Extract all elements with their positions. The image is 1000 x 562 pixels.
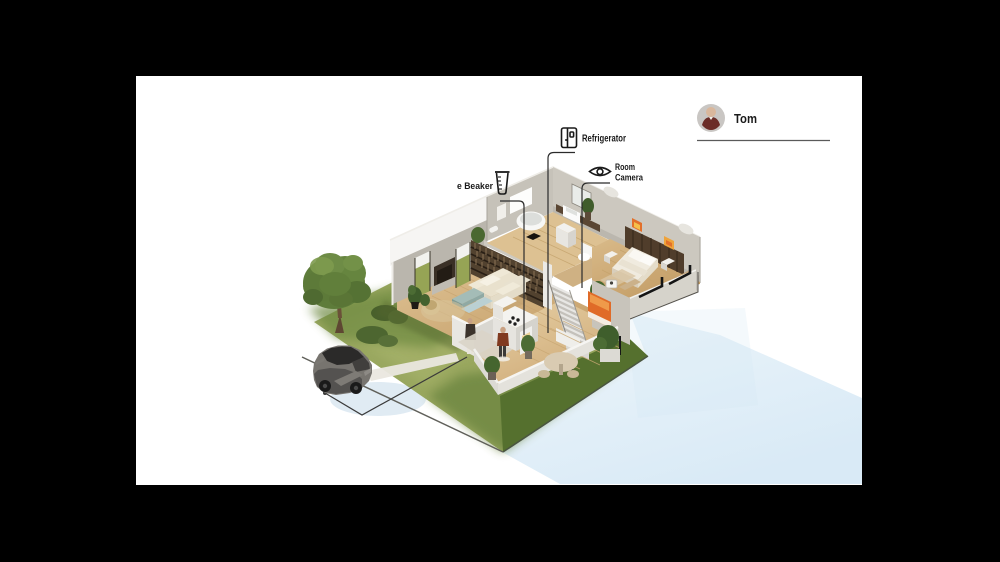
svg-text:Tom: Tom [734, 111, 757, 126]
svg-text:e Beaker: e Beaker [457, 181, 493, 191]
svg-text:Camera: Camera [615, 173, 644, 183]
svg-text:Refrigerator: Refrigerator [582, 134, 626, 145]
svg-text:Room: Room [615, 162, 635, 172]
